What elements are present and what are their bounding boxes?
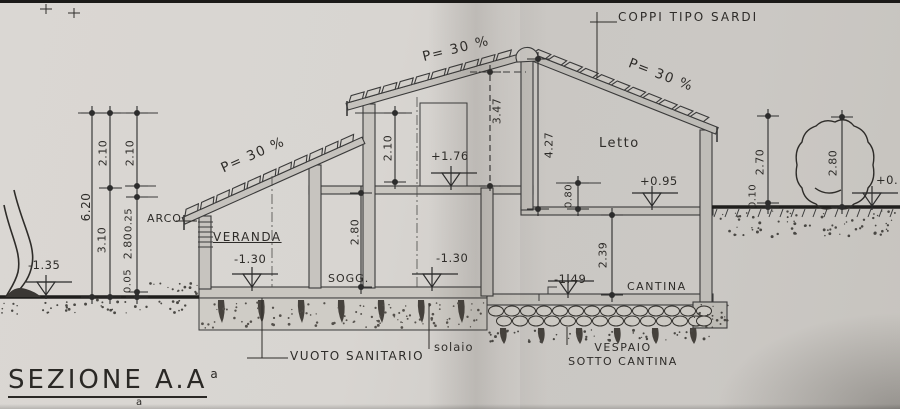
dim-text-left-total: 6.20: [79, 193, 93, 222]
dim-text-left-room: 2.80: [122, 233, 135, 260]
vespaio-line1: VESPAIO: [553, 341, 693, 355]
level-text-cantina-floor: -1.49: [554, 272, 586, 286]
stipple-near-building: [149, 282, 198, 295]
vespaio-stones: [489, 306, 712, 326]
scanned-section-drawing: SEZIONE A.Aa a COPPI TIPO SARDI P= 30 % …: [0, 0, 900, 409]
dim-text-sogg-room: 2.80: [349, 219, 362, 246]
dim-text-letto-room: 4.27: [543, 132, 556, 159]
right-wall: [700, 130, 712, 302]
dim-text-mid-wall: 2.10: [382, 135, 395, 162]
dim-text-right-a2: 0.10: [748, 184, 759, 208]
roof-tile-note: COPPI TIPO SARDI: [618, 10, 758, 24]
level-text-veranda-floor: -1.30: [234, 252, 266, 266]
tree-left: [4, 190, 41, 297]
vespaio-line2: SOTTO CANTINA: [553, 355, 693, 369]
cantina-floor-slab: [487, 294, 713, 305]
level-text-terrain-right: +0.: [876, 173, 898, 187]
level-text-terrain-left: -1.35: [28, 258, 60, 272]
dim-text-right-a: 2.70: [754, 149, 767, 176]
level-text-letto-floor: +0.95: [640, 174, 678, 188]
ground-floor-slab: [199, 287, 487, 298]
dim-text-left-upper-b: 2.10: [124, 140, 137, 167]
dim-ridge-upper: [479, 65, 501, 193]
dim-text-floor-step: 0.80: [564, 184, 575, 208]
letto-floor-slab: [521, 207, 713, 215]
ridge-cap: [516, 47, 538, 62]
veranda-inner-wall: [309, 165, 321, 288]
cantina-left-wall: [481, 188, 493, 296]
dim-text-left-lower-a: 3.10: [96, 227, 109, 254]
level-text-sogg-floor: -1.30: [436, 251, 468, 265]
dim-text-left-beam: 0.25: [124, 208, 135, 232]
title-text: SEZIONE A.A: [8, 365, 207, 398]
arco-label: ARCO: [147, 212, 182, 225]
stipple-left-ground: [1, 299, 186, 315]
solaio-label: solaio: [434, 340, 474, 354]
dim-text-ridge-upper: 3.47: [491, 98, 504, 125]
first-floor-slab: [309, 186, 533, 194]
center-wall: [521, 59, 533, 210]
drawing-title: SEZIONE A.Aa a: [8, 365, 218, 395]
vuoto-sanitario-label: VUOTO SANITARIO: [290, 349, 424, 363]
registration-marks: [40, 4, 80, 18]
room-letto: Letto: [599, 136, 640, 151]
room-veranda: VERANDA: [213, 230, 282, 244]
title-subscript: a: [136, 397, 145, 408]
dim-left-chain-b: [99, 106, 121, 304]
title-superscript: a: [210, 367, 220, 381]
dim-text-cantina-room: 2.39: [597, 242, 610, 269]
vespaio-label: VESPAIO SOTTO CANTINA: [553, 341, 693, 369]
room-soggiorno: SOGG.: [328, 272, 369, 285]
dim-text-left-upper-a: 2.10: [97, 140, 110, 167]
middle-left-wall: [363, 104, 375, 288]
dim-text-left-plinth: 0.05: [123, 269, 134, 293]
dim-text-right-b: 2.80: [827, 150, 840, 177]
level-letto-floor: [632, 186, 678, 210]
level-text-first-floor: +1.76: [431, 149, 469, 163]
room-cantina: CANTINA: [627, 280, 687, 293]
